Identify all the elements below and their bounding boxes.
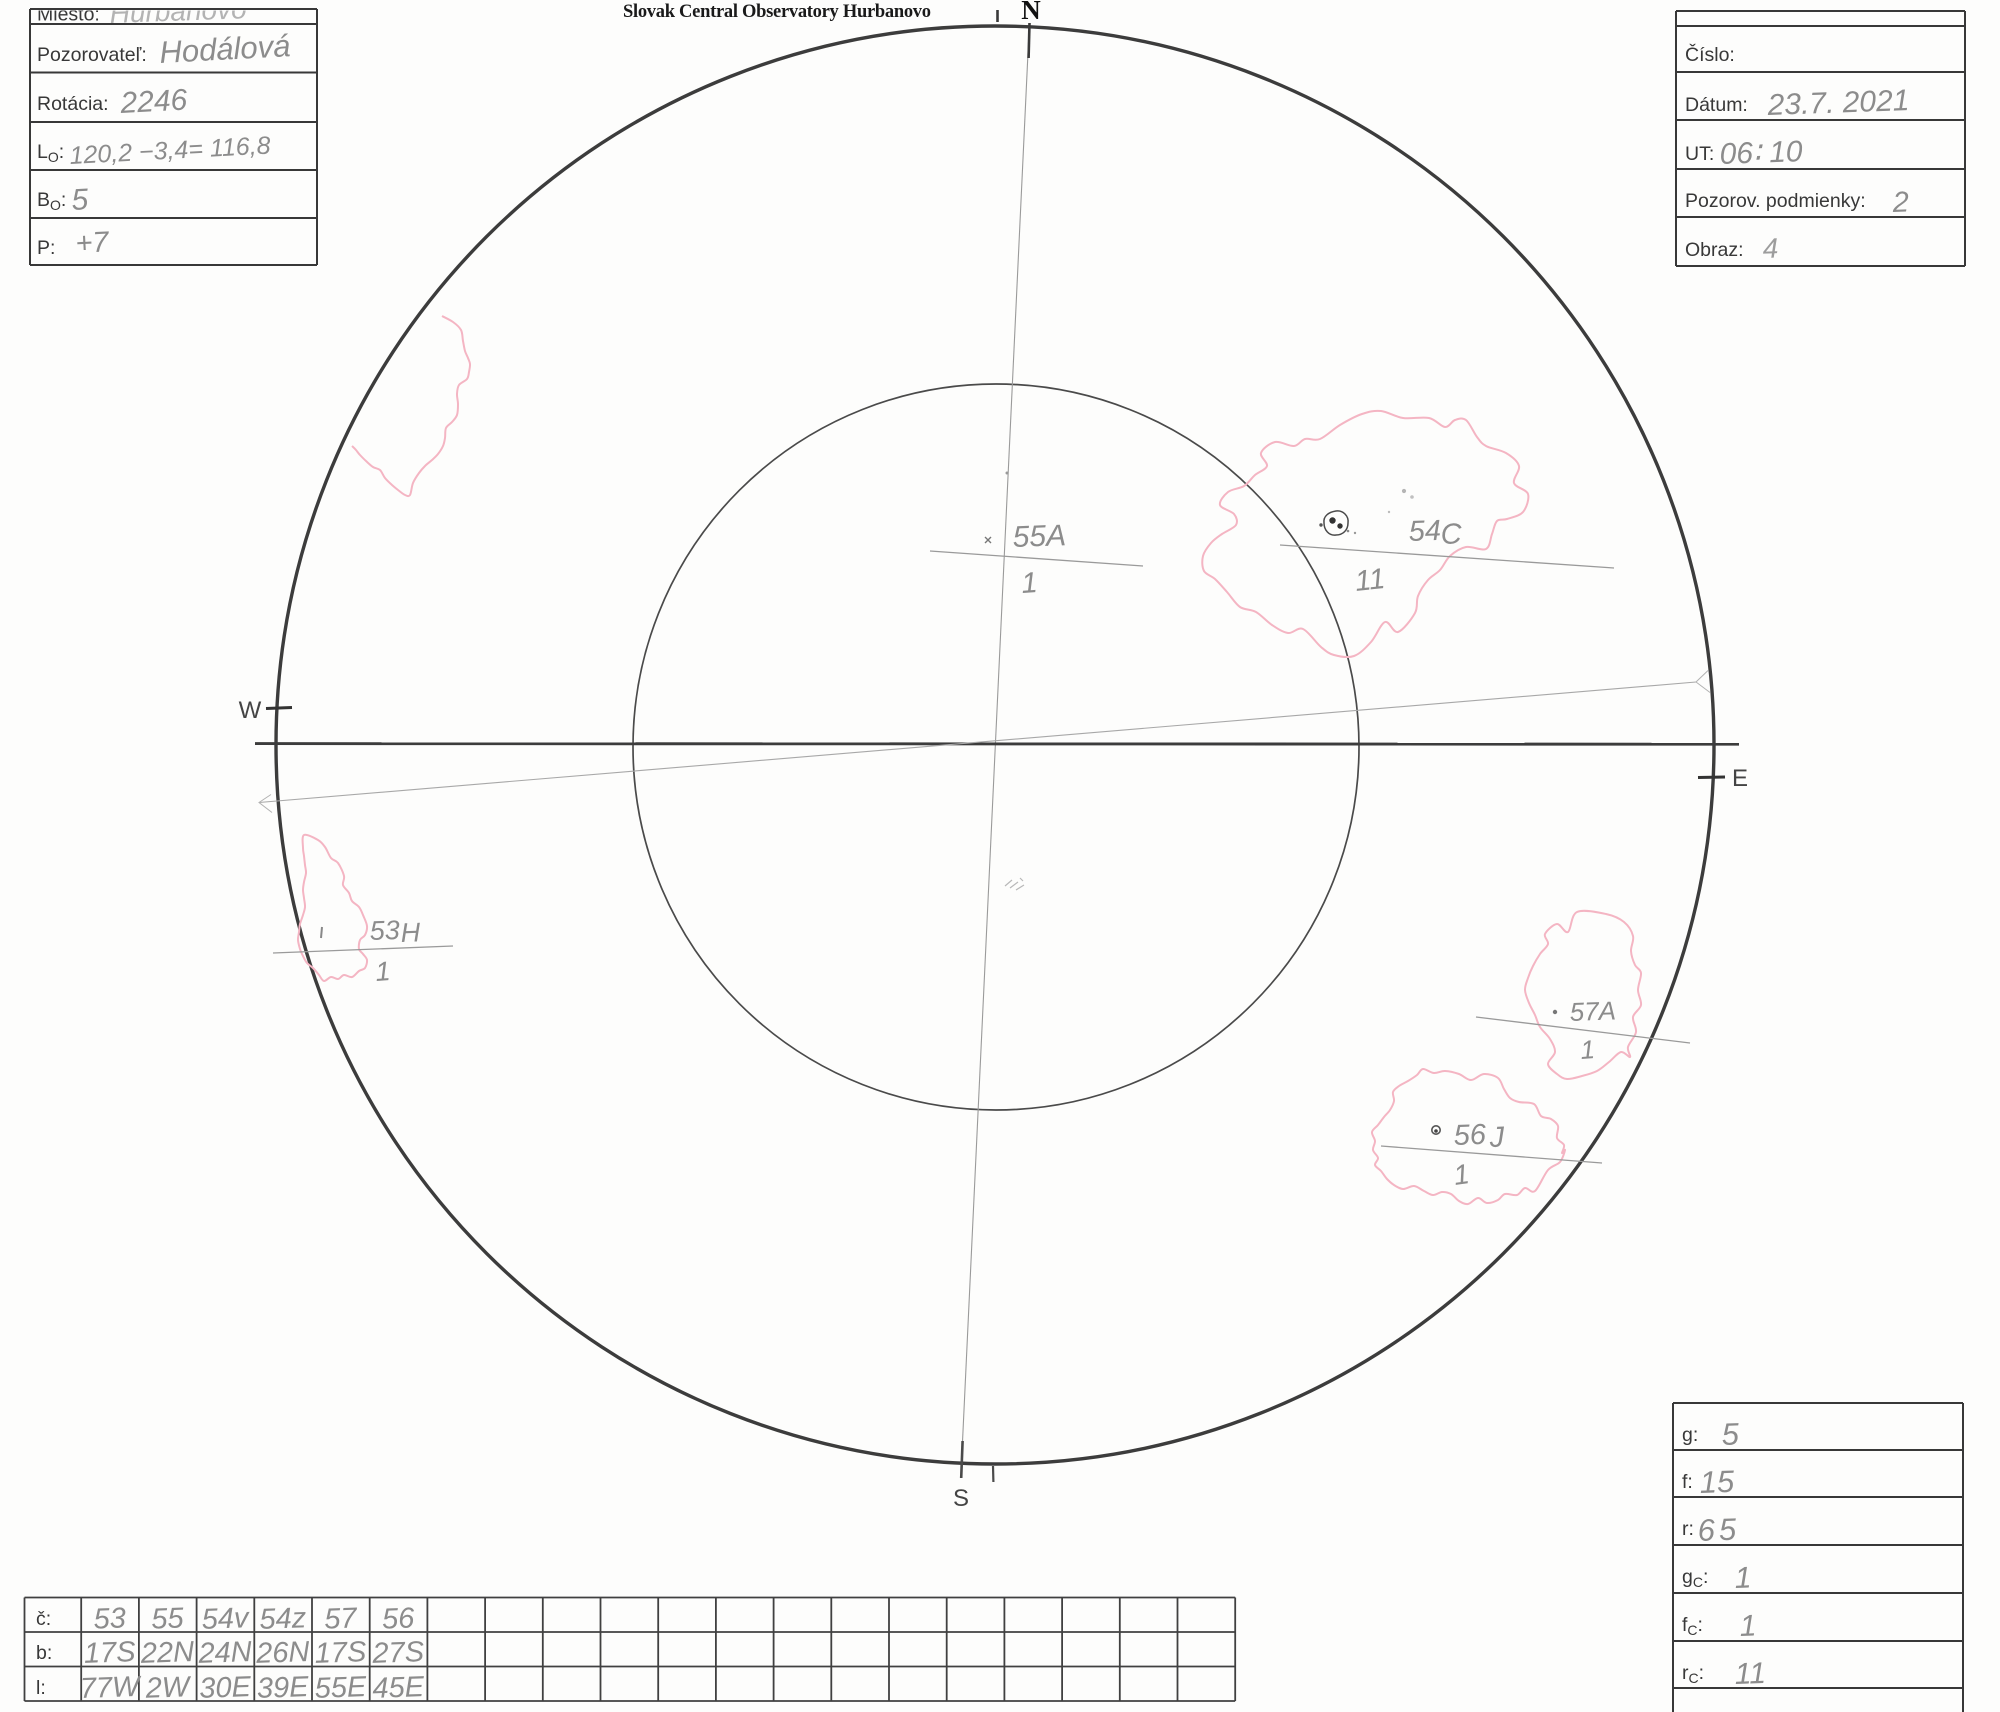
svg-text:26N: 26N [255, 1636, 310, 1670]
svg-text:54z: 54z [259, 1602, 307, 1636]
svg-text:55A: 55A [1012, 519, 1067, 554]
svg-text:Hodálová: Hodálová [159, 28, 292, 70]
svg-text:53: 53 [369, 915, 400, 946]
svg-text:1: 1 [1734, 1561, 1752, 1595]
svg-text:H: H [400, 917, 421, 948]
svg-text:Pozorovateľ:: Pozorovateľ: [37, 44, 147, 66]
svg-text:+7: +7 [75, 226, 112, 260]
svg-text:1: 1 [374, 956, 391, 987]
svg-text:Dátum:: Dátum: [1685, 94, 1748, 116]
svg-text:11: 11 [1353, 563, 1386, 598]
svg-text:56: 56 [1453, 1119, 1487, 1152]
svg-text:17S: 17S [314, 1636, 367, 1670]
svg-text:Slovak Central Observatory Hur: Slovak Central Observatory Hurbanovo [623, 2, 931, 22]
svg-text:Rotácia:: Rotácia: [37, 93, 109, 115]
svg-text:11: 11 [1734, 1657, 1766, 1691]
svg-text:g:: g: [1682, 1424, 1698, 1446]
svg-text:77W: 77W [79, 1671, 142, 1705]
svg-text:45E: 45E [372, 1671, 425, 1705]
svg-text:UT:: UT: [1685, 143, 1714, 165]
svg-text:57: 57 [324, 1602, 359, 1635]
svg-text:23.7. 2021: 23.7. 2021 [1766, 84, 1910, 122]
svg-text:r:: r: [1682, 1518, 1694, 1540]
svg-text:27S: 27S [371, 1636, 425, 1670]
svg-text:J: J [1488, 1121, 1505, 1154]
svg-text:S: S [953, 1485, 969, 1512]
svg-text:17S: 17S [83, 1636, 136, 1670]
svg-text:5: 5 [71, 183, 90, 217]
svg-text:65: 65 [1697, 1512, 1741, 1548]
svg-text:Pozorov. podmienky:: Pozorov. podmienky: [1685, 190, 1866, 212]
svg-text:54v: 54v [201, 1602, 250, 1636]
svg-text:P:: P: [37, 237, 55, 259]
svg-text:15: 15 [1699, 1464, 1735, 1500]
svg-text:22N: 22N [139, 1636, 194, 1670]
svg-text:2: 2 [1891, 186, 1909, 219]
svg-text:1: 1 [1739, 1609, 1757, 1643]
svg-text:W: W [239, 697, 262, 724]
svg-text:b:: b: [36, 1642, 52, 1664]
svg-text:56: 56 [382, 1602, 416, 1635]
svg-text:55E: 55E [314, 1671, 367, 1705]
svg-text:E: E [1732, 765, 1748, 792]
svg-text:l:: l: [36, 1677, 46, 1699]
svg-text:č:: č: [36, 1608, 51, 1630]
svg-text:Obraz:: Obraz: [1685, 239, 1744, 261]
svg-text:f:: f: [1682, 1471, 1693, 1493]
svg-text:30E: 30E [199, 1671, 252, 1705]
svg-text:5: 5 [1721, 1416, 1740, 1452]
svg-text:57A: 57A [1569, 995, 1616, 1027]
svg-text:54: 54 [1408, 515, 1441, 548]
svg-text:06∶ 10: 06∶ 10 [1719, 135, 1803, 171]
svg-text:N: N [1021, 0, 1041, 25]
svg-text:55: 55 [151, 1602, 185, 1635]
svg-text:C: C [1440, 518, 1463, 551]
svg-text:2246: 2246 [119, 84, 189, 121]
svg-text:2W: 2W [144, 1671, 192, 1705]
svg-text:39E: 39E [256, 1671, 309, 1705]
svg-text:24N: 24N [197, 1636, 252, 1670]
svg-text:53: 53 [93, 1602, 126, 1635]
svg-text:1: 1 [1579, 1034, 1596, 1065]
svg-text:1: 1 [1020, 567, 1038, 600]
svg-text:Číslo:: Číslo: [1685, 43, 1735, 66]
svg-text:4: 4 [1762, 232, 1779, 264]
